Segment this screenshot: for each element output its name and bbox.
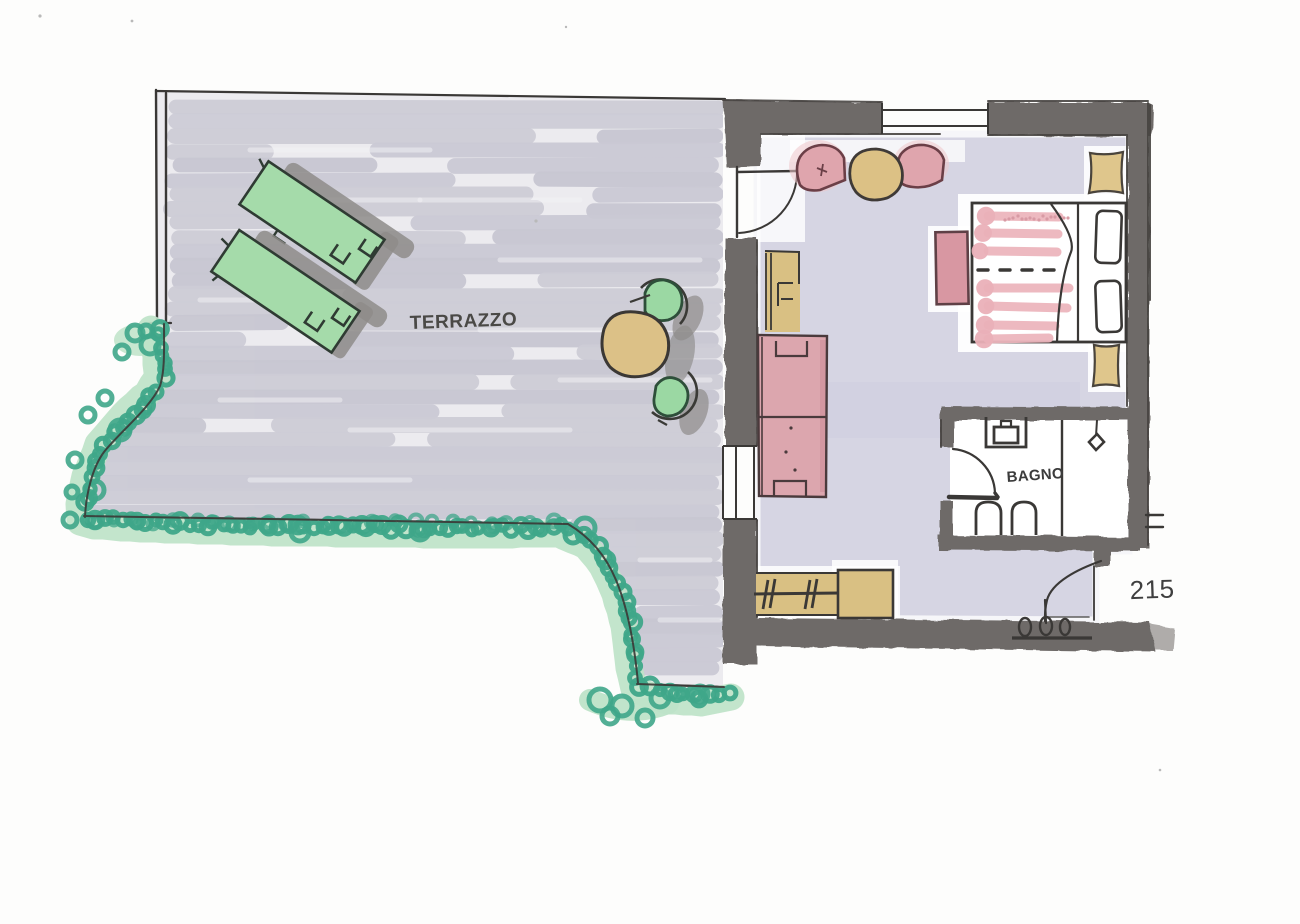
svg-text:TERRAZZO: TERRAZZO xyxy=(409,309,517,334)
svg-text:215: 215 xyxy=(1129,574,1175,606)
